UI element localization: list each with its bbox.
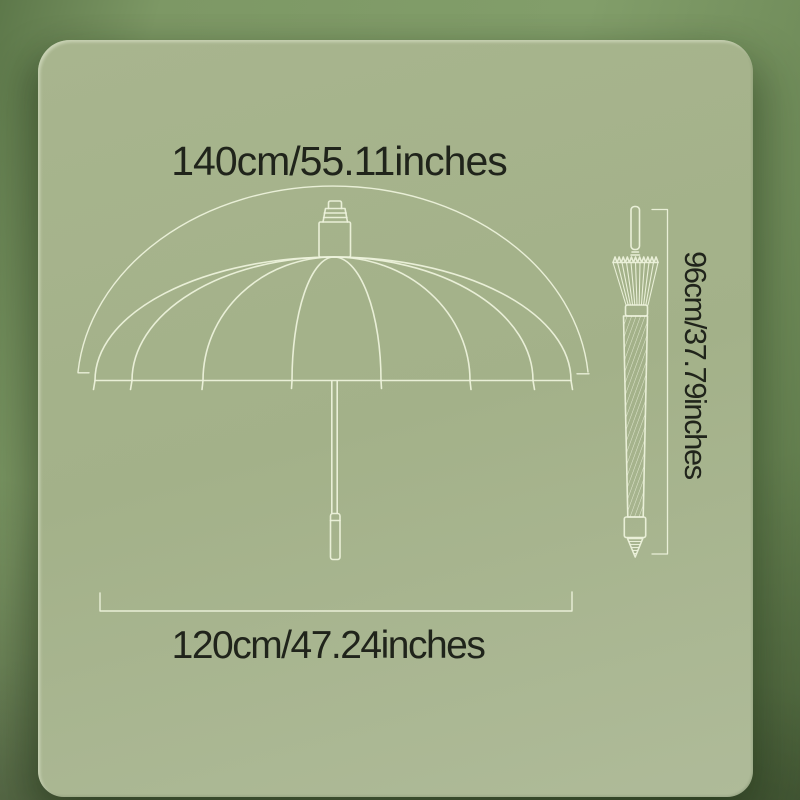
umbrella-shaft — [331, 381, 341, 560]
crown-pleats — [613, 263, 658, 306]
umbrella-top-cap — [319, 201, 351, 257]
ferrule-cap — [624, 517, 645, 538]
wrapped-canopy-body — [624, 316, 648, 517]
tie-band — [626, 305, 648, 316]
open-diameter-label: 120cm/47.24inches — [118, 624, 538, 668]
closed-umbrella-side-view — [613, 207, 658, 558]
closed-umbrella-handle — [631, 207, 640, 250]
width-arc-dimension — [78, 186, 589, 374]
product-dimension-image: { "labels": { "canopy_width": "140cm/55.… — [0, 0, 800, 800]
crown-teeth — [613, 257, 658, 263]
canopy-ribs — [94, 257, 573, 390]
canopy-width-label: 140cm/55.11inches — [119, 138, 559, 185]
closed-length-label: 96cm/37.79inches — [677, 251, 713, 479]
diameter-dimension-line — [100, 592, 572, 611]
open-umbrella-front-view — [94, 201, 573, 560]
